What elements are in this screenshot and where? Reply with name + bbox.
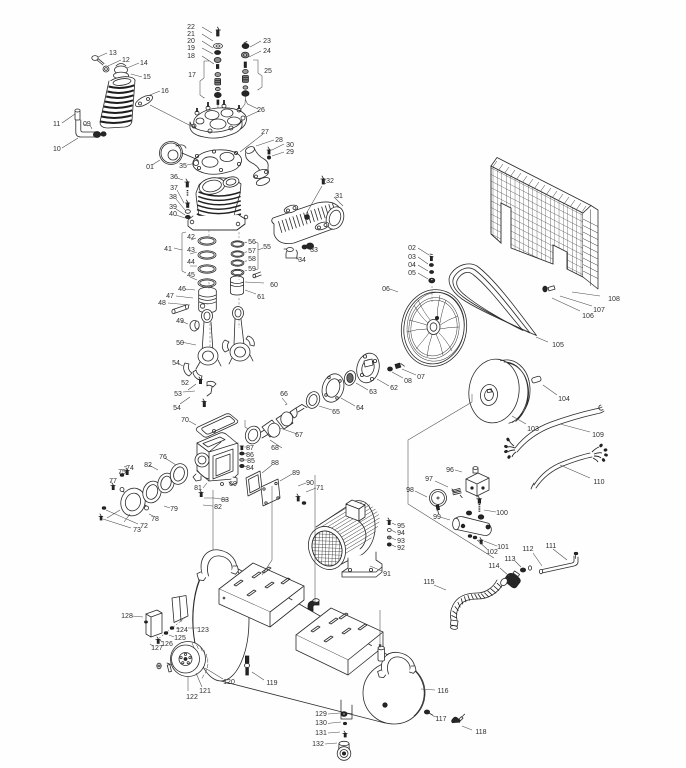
svg-text:97: 97 — [425, 476, 433, 483]
svg-text:72: 72 — [140, 523, 148, 530]
svg-text:83: 83 — [221, 497, 229, 504]
svg-text:12: 12 — [122, 57, 130, 64]
svg-text:56: 56 — [248, 239, 256, 246]
svg-text:122: 122 — [186, 694, 198, 701]
svg-text:68: 68 — [271, 445, 279, 452]
svg-text:91: 91 — [383, 571, 391, 578]
svg-text:92: 92 — [397, 545, 405, 552]
svg-text:61: 61 — [257, 294, 265, 301]
svg-text:18: 18 — [187, 53, 195, 60]
svg-text:10: 10 — [53, 146, 61, 153]
svg-text:45: 45 — [187, 272, 195, 279]
svg-text:27: 27 — [261, 129, 269, 136]
svg-text:130: 130 — [315, 720, 327, 727]
svg-text:13: 13 — [109, 50, 117, 57]
svg-text:113: 113 — [504, 556, 515, 563]
svg-text:03: 03 — [408, 254, 416, 261]
svg-text:59: 59 — [248, 266, 256, 273]
svg-text:73: 73 — [133, 527, 141, 534]
svg-text:50: 50 — [176, 340, 184, 347]
svg-text:02: 02 — [408, 245, 416, 252]
svg-text:105: 105 — [552, 342, 564, 349]
svg-text:30: 30 — [286, 142, 294, 149]
svg-text:95: 95 — [397, 523, 405, 530]
svg-text:37: 37 — [170, 185, 178, 192]
svg-text:79: 79 — [170, 506, 178, 513]
svg-text:54: 54 — [173, 405, 181, 412]
svg-text:53: 53 — [174, 391, 182, 398]
svg-text:82: 82 — [214, 504, 222, 511]
svg-text:98: 98 — [406, 487, 414, 494]
svg-text:82: 82 — [144, 462, 152, 469]
svg-text:117: 117 — [435, 716, 446, 723]
svg-text:08: 08 — [404, 378, 412, 385]
svg-text:11: 11 — [53, 121, 60, 128]
svg-text:89: 89 — [292, 470, 300, 477]
svg-text:20: 20 — [187, 38, 195, 45]
svg-text:100: 100 — [496, 510, 508, 517]
svg-text:40: 40 — [169, 211, 177, 218]
svg-text:44: 44 — [187, 259, 195, 266]
svg-text:42: 42 — [187, 234, 195, 241]
svg-text:55: 55 — [263, 244, 271, 251]
svg-text:28: 28 — [275, 137, 283, 144]
svg-text:15: 15 — [143, 74, 151, 81]
svg-text:77: 77 — [109, 478, 117, 485]
svg-text:125: 125 — [174, 635, 186, 642]
svg-text:33: 33 — [310, 247, 318, 254]
svg-text:47: 47 — [166, 293, 174, 300]
svg-text:107: 107 — [593, 307, 605, 314]
svg-text:07: 07 — [417, 374, 425, 381]
svg-text:87: 87 — [246, 445, 254, 452]
svg-text:110: 110 — [593, 479, 604, 486]
svg-text:99: 99 — [433, 514, 441, 521]
svg-text:127: 127 — [151, 645, 163, 652]
svg-text:78: 78 — [151, 516, 159, 523]
svg-text:23: 23 — [263, 38, 271, 45]
svg-text:84: 84 — [246, 465, 254, 472]
svg-text:01: 01 — [146, 164, 154, 171]
svg-text:32: 32 — [326, 178, 334, 185]
svg-text:41: 41 — [164, 246, 172, 253]
svg-text:25: 25 — [264, 68, 272, 75]
svg-text:57: 57 — [248, 248, 256, 255]
svg-text:128: 128 — [121, 613, 133, 620]
svg-text:29: 29 — [286, 149, 294, 156]
svg-text:34: 34 — [298, 257, 306, 264]
svg-text:124: 124 — [176, 627, 188, 634]
svg-text:111: 111 — [546, 543, 557, 550]
svg-text:31: 31 — [335, 193, 343, 200]
svg-text:58: 58 — [248, 256, 256, 263]
svg-text:17: 17 — [188, 72, 196, 79]
svg-text:60: 60 — [270, 282, 278, 289]
svg-text:123: 123 — [197, 627, 209, 634]
svg-text:115: 115 — [423, 579, 434, 586]
svg-text:14: 14 — [140, 60, 148, 67]
svg-text:121: 121 — [199, 688, 211, 695]
svg-text:05: 05 — [408, 270, 416, 277]
svg-text:54: 54 — [172, 360, 180, 367]
svg-text:90: 90 — [306, 480, 314, 487]
svg-text:67: 67 — [295, 432, 303, 439]
svg-text:43: 43 — [187, 247, 195, 254]
svg-text:88: 88 — [271, 460, 279, 467]
svg-text:85: 85 — [247, 458, 255, 465]
svg-text:114: 114 — [488, 563, 499, 570]
svg-text:26: 26 — [257, 107, 265, 114]
svg-text:38: 38 — [169, 194, 177, 201]
svg-text:103: 103 — [527, 426, 539, 433]
svg-text:66: 66 — [280, 391, 288, 398]
svg-text:39: 39 — [169, 204, 177, 211]
svg-text:102: 102 — [486, 549, 498, 556]
svg-text:46: 46 — [178, 286, 186, 293]
svg-text:112: 112 — [522, 546, 533, 553]
svg-text:62: 62 — [390, 385, 398, 392]
svg-text:06: 06 — [382, 286, 390, 293]
svg-text:109: 109 — [592, 432, 604, 439]
svg-text:49: 49 — [176, 318, 184, 325]
svg-text:19: 19 — [187, 45, 195, 52]
svg-text:04: 04 — [408, 262, 416, 269]
svg-text:36: 36 — [170, 174, 178, 181]
svg-text:69: 69 — [229, 481, 237, 488]
svg-text:75: 75 — [118, 469, 126, 476]
svg-text:71: 71 — [316, 485, 324, 492]
svg-text:74: 74 — [126, 465, 134, 472]
svg-text:129: 129 — [315, 711, 327, 718]
svg-text:118: 118 — [475, 729, 486, 736]
svg-text:119: 119 — [266, 680, 277, 687]
svg-text:104: 104 — [558, 396, 570, 403]
svg-text:76: 76 — [159, 454, 167, 461]
svg-text:21: 21 — [187, 31, 195, 38]
svg-text:35: 35 — [179, 163, 187, 170]
svg-text:131: 131 — [315, 730, 327, 737]
svg-text:108: 108 — [608, 296, 620, 303]
svg-text:16: 16 — [161, 88, 169, 95]
svg-text:120: 120 — [223, 679, 235, 686]
svg-text:64: 64 — [356, 405, 364, 412]
svg-text:96: 96 — [446, 467, 454, 474]
svg-text:65: 65 — [332, 409, 340, 416]
svg-text:93: 93 — [397, 538, 405, 545]
svg-text:09: 09 — [83, 121, 91, 128]
svg-text:81: 81 — [194, 485, 202, 492]
svg-text:52: 52 — [181, 380, 189, 387]
svg-text:106: 106 — [582, 313, 594, 320]
svg-text:94: 94 — [397, 530, 405, 537]
svg-text:132: 132 — [312, 741, 324, 748]
svg-text:48: 48 — [158, 300, 166, 307]
svg-text:116: 116 — [437, 688, 448, 695]
svg-text:70: 70 — [181, 417, 189, 424]
svg-text:63: 63 — [369, 389, 377, 396]
svg-text:22: 22 — [187, 24, 195, 31]
svg-text:101: 101 — [497, 544, 509, 551]
svg-text:24: 24 — [263, 48, 271, 55]
svg-text:126: 126 — [161, 641, 173, 648]
